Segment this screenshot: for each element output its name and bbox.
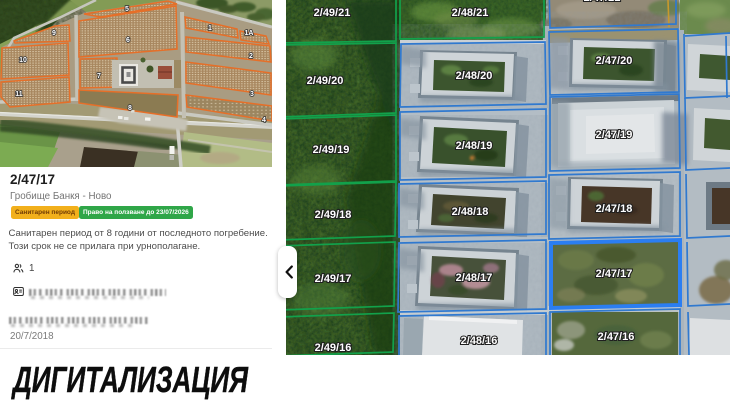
svg-text:2/48/18: 2/48/18 [452, 206, 489, 218]
svg-text:1: 1 [208, 25, 212, 32]
svg-text:2/47/20: 2/47/20 [596, 55, 633, 67]
svg-text:4: 4 [262, 117, 266, 124]
svg-text:5: 5 [125, 6, 129, 13]
svg-text:2/47/19: 2/47/19 [596, 129, 633, 141]
svg-text:2/49/19: 2/49/19 [313, 144, 350, 156]
svg-text:2/48/21: 2/48/21 [452, 7, 489, 19]
svg-text:2/48/20: 2/48/20 [456, 70, 493, 82]
svg-text:2/47/18: 2/47/18 [596, 203, 633, 215]
svg-text:2/49/18: 2/49/18 [315, 209, 352, 221]
svg-text:8: 8 [128, 105, 132, 112]
svg-text:2/47/16: 2/47/16 [598, 331, 635, 343]
svg-text:2/47/17: 2/47/17 [596, 268, 633, 280]
svg-text:2/48/19: 2/48/19 [456, 140, 493, 152]
svg-text:11: 11 [15, 91, 23, 98]
svg-text:2/49/17: 2/49/17 [315, 273, 352, 285]
svg-text:2/49/21: 2/49/21 [314, 7, 351, 19]
svg-text:2/48/16: 2/48/16 [461, 335, 498, 347]
svg-text:1A: 1A [245, 30, 254, 37]
svg-text:6: 6 [126, 37, 130, 44]
svg-text:2: 2 [249, 53, 253, 60]
svg-text:7: 7 [97, 73, 101, 80]
svg-text:2/48/17: 2/48/17 [456, 272, 493, 284]
svg-text:3: 3 [250, 91, 254, 98]
svg-text:2/49/20: 2/49/20 [307, 75, 344, 87]
svg-text:10: 10 [19, 57, 27, 64]
svg-text:9: 9 [52, 30, 56, 37]
svg-text:2/49/16: 2/49/16 [315, 342, 352, 354]
svg-text:2/47/21: 2/47/21 [584, 0, 621, 4]
